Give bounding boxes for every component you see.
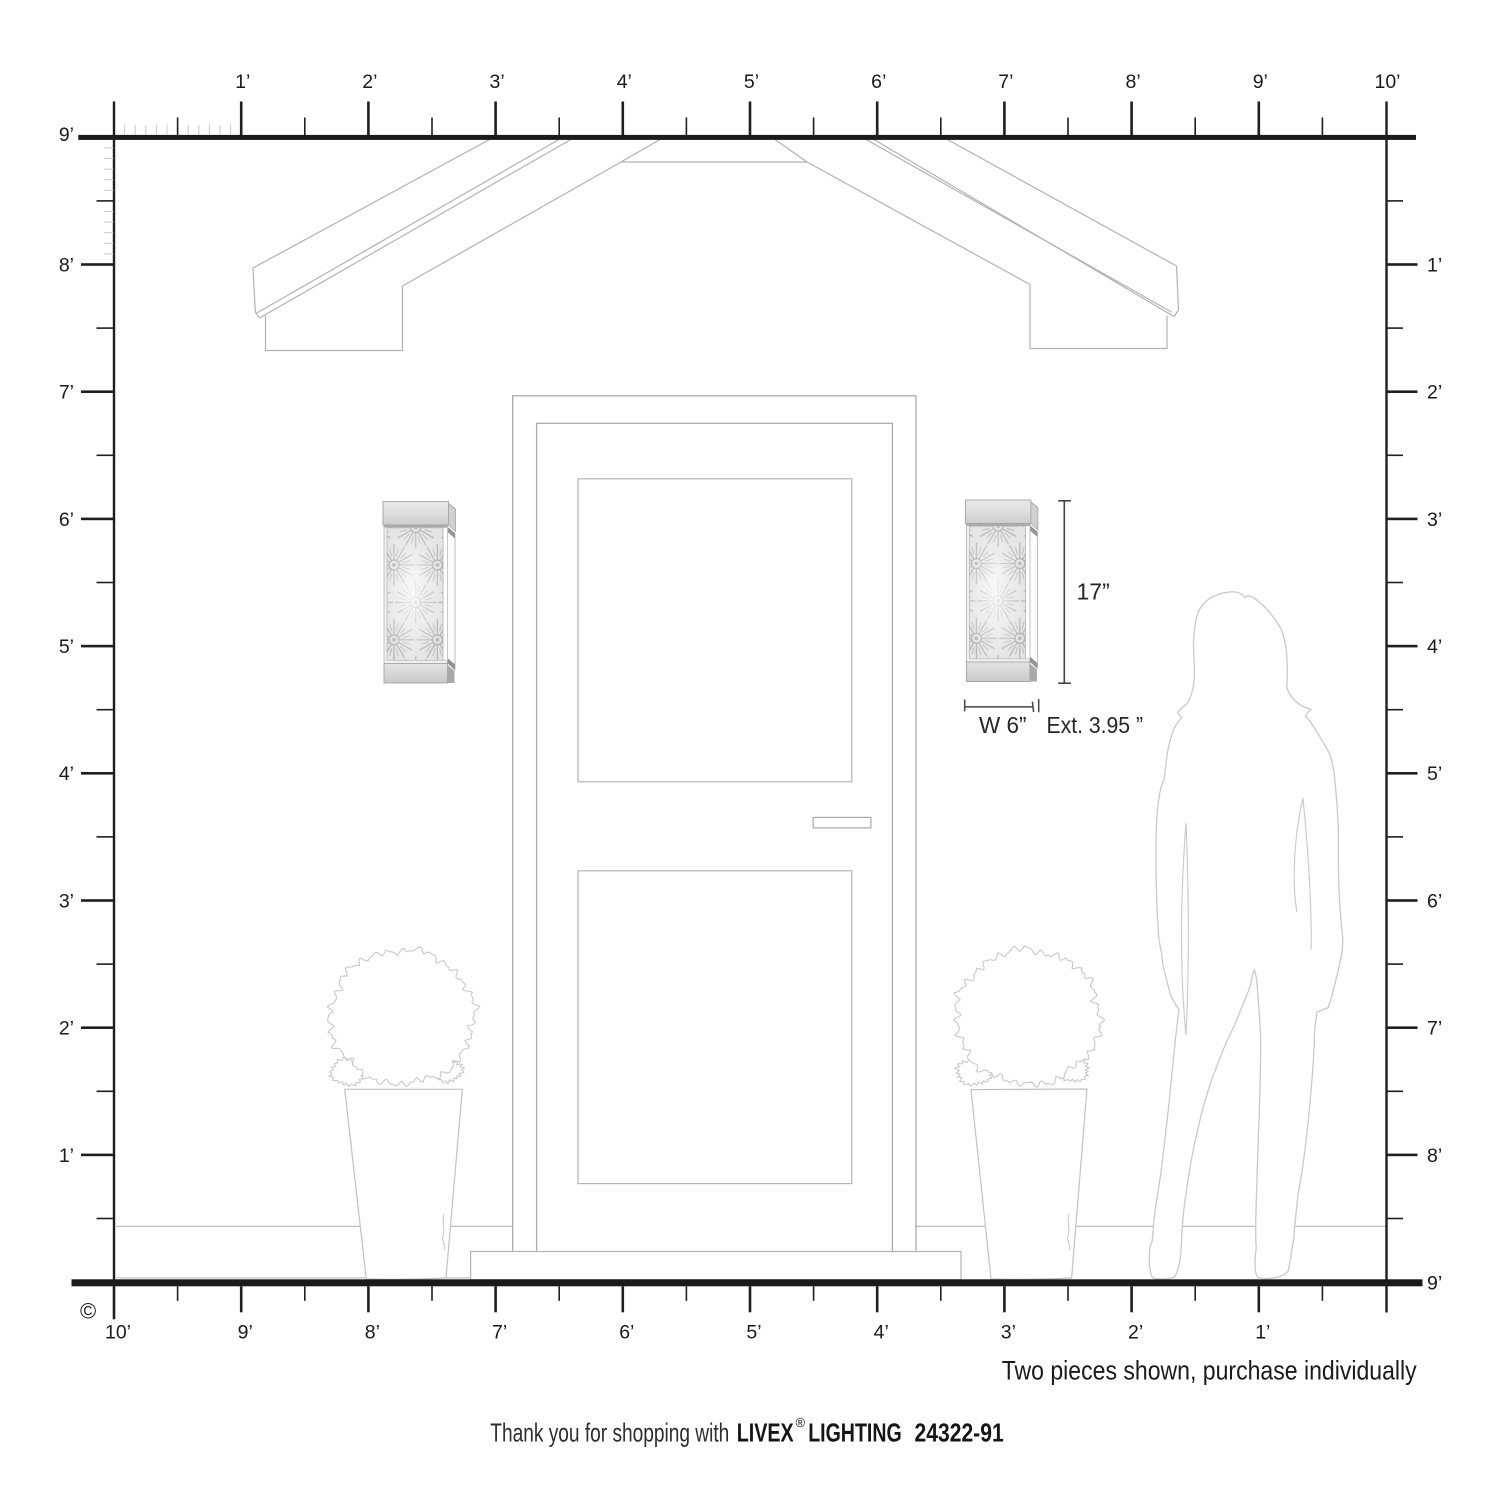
svg-text:2’: 2’	[1128, 1322, 1143, 1344]
svg-text:1’: 1’	[1427, 254, 1442, 276]
svg-text:8’: 8’	[59, 254, 74, 276]
svg-text:9’: 9’	[59, 124, 74, 146]
svg-text:5’: 5’	[746, 1322, 761, 1344]
svg-text:©: ©	[80, 1299, 96, 1324]
svg-text:2’: 2’	[362, 71, 377, 93]
svg-text:4’: 4’	[874, 1322, 889, 1344]
svg-text:6’: 6’	[59, 509, 74, 531]
svg-text:®: ®	[796, 1415, 806, 1430]
svg-text:1’: 1’	[1255, 1322, 1270, 1344]
svg-text:10’: 10’	[105, 1322, 131, 1344]
svg-text:5’: 5’	[1427, 763, 1442, 785]
svg-text:10’: 10’	[1374, 71, 1400, 93]
svg-text:LIVEX: LIVEX	[737, 1418, 794, 1448]
svg-text:Thank you for shopping with: Thank you for shopping with	[490, 1418, 729, 1448]
svg-text:5’: 5’	[744, 71, 759, 93]
svg-text:17”: 17”	[1077, 578, 1110, 604]
svg-text:5’: 5’	[59, 636, 74, 658]
svg-text:6’: 6’	[1427, 890, 1442, 912]
svg-text:9’: 9’	[1427, 1273, 1442, 1295]
svg-text:7’: 7’	[1427, 1018, 1442, 1040]
svg-text:3’: 3’	[1427, 509, 1442, 531]
svg-text:24322-91: 24322-91	[915, 1418, 1004, 1448]
svg-text:9’: 9’	[238, 1322, 253, 1344]
svg-text:LIGHTING: LIGHTING	[808, 1418, 902, 1448]
svg-text:7’: 7’	[492, 1322, 507, 1344]
svg-text:6’: 6’	[871, 71, 886, 93]
svg-text:9’: 9’	[1253, 71, 1268, 93]
svg-text:3’: 3’	[59, 890, 74, 912]
svg-text:3’: 3’	[1001, 1322, 1016, 1344]
svg-text:4’: 4’	[1427, 636, 1442, 658]
svg-text:4’: 4’	[59, 763, 74, 785]
svg-text:Two pieces shown, purchase ind: Two pieces shown, purchase individually	[1002, 1355, 1417, 1385]
svg-text:2’: 2’	[1427, 382, 1442, 404]
svg-text:Ext. 3.95 ”: Ext. 3.95 ”	[1047, 712, 1144, 738]
svg-text:4’: 4’	[617, 71, 632, 93]
svg-text:6’: 6’	[619, 1322, 634, 1344]
svg-text:8’: 8’	[365, 1322, 380, 1344]
svg-text:8’: 8’	[1427, 1145, 1442, 1167]
svg-text:3’: 3’	[490, 71, 505, 93]
svg-text:2’: 2’	[59, 1018, 74, 1040]
svg-text:8’: 8’	[1126, 71, 1141, 93]
svg-text:7’: 7’	[59, 382, 74, 404]
svg-text:7’: 7’	[998, 71, 1013, 93]
svg-text:W 6”: W 6”	[979, 712, 1027, 738]
svg-text:1’: 1’	[59, 1145, 74, 1167]
svg-text:1’: 1’	[235, 71, 250, 93]
